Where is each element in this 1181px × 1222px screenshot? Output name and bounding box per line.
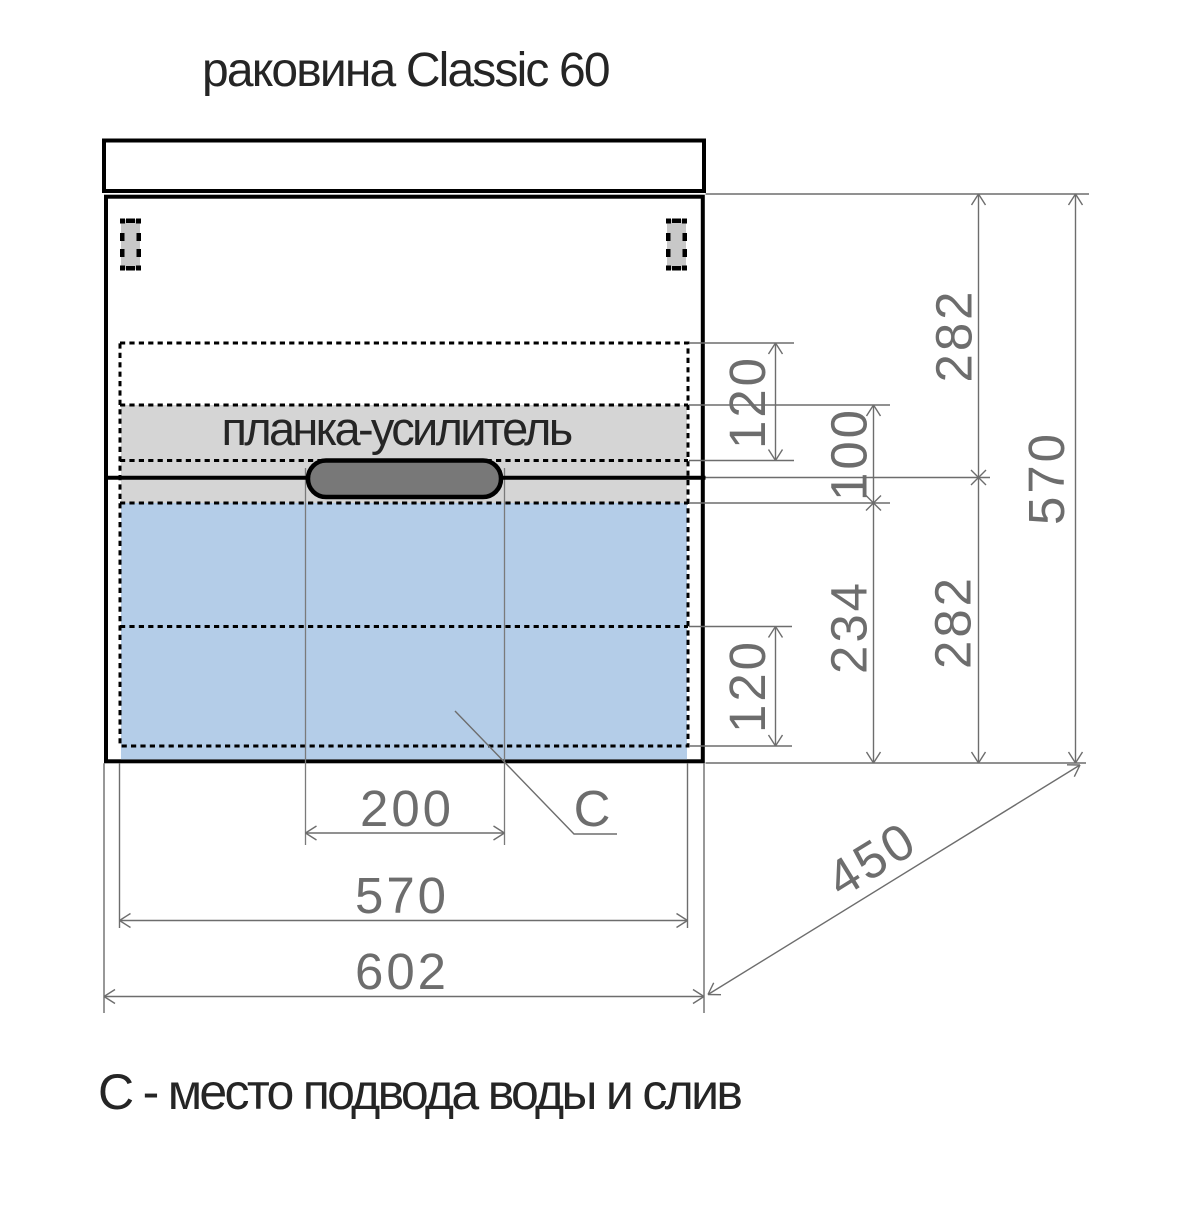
svg-text:планка-усилитель: планка-усилитель [221, 402, 571, 455]
svg-text:602: 602 [355, 943, 449, 1000]
svg-text:C: C [574, 780, 614, 837]
svg-text:282: 282 [925, 575, 982, 669]
svg-text:200: 200 [360, 780, 454, 837]
svg-text:120: 120 [719, 355, 776, 449]
svg-text:282: 282 [926, 288, 983, 382]
svg-text:570: 570 [1018, 431, 1075, 525]
svg-text:120: 120 [719, 639, 776, 733]
svg-text:раковина Classic 60: раковина Classic 60 [202, 44, 609, 97]
svg-text:570: 570 [355, 867, 449, 924]
svg-text:100: 100 [821, 407, 878, 501]
svg-text:234: 234 [821, 580, 878, 674]
svg-text:С - место подвода воды и слив: С - место подвода воды и слив [98, 1064, 741, 1120]
